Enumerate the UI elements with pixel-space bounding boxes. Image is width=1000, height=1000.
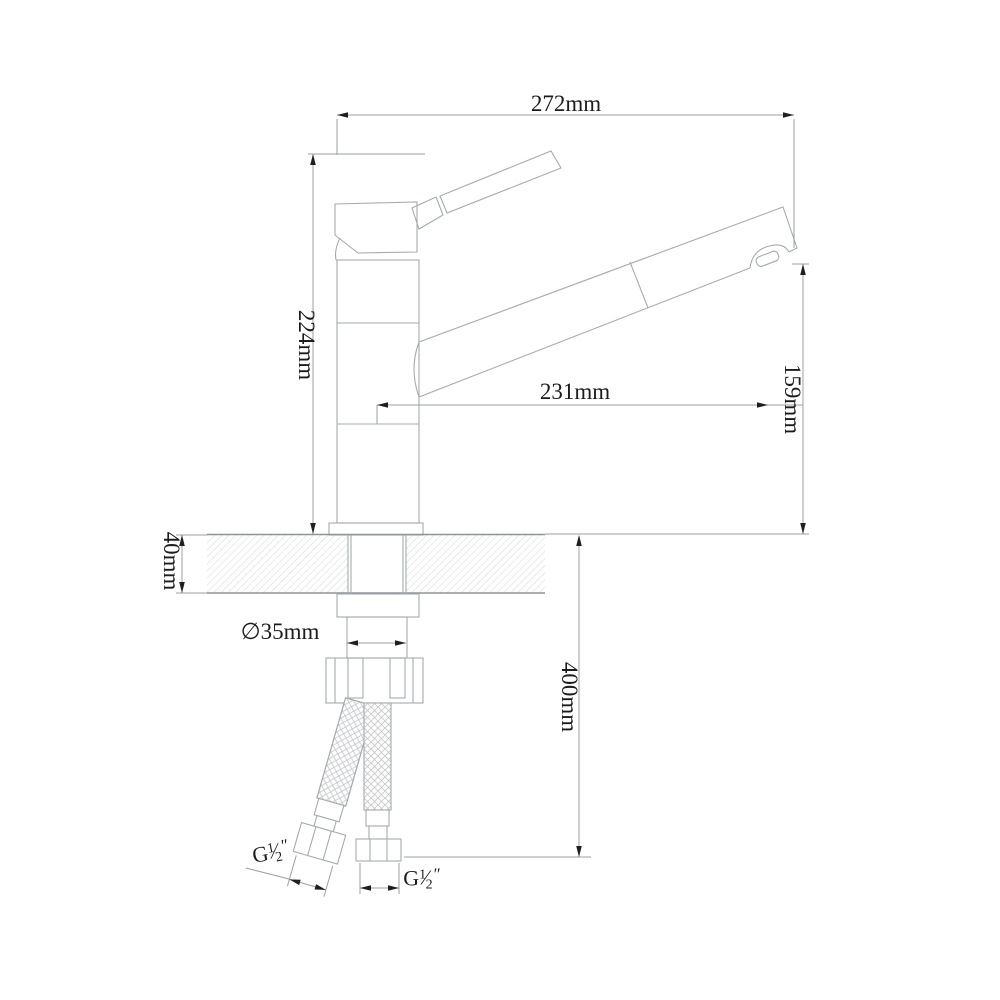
faucet-outline xyxy=(329,151,797,535)
dimension-overall-height: 224mm xyxy=(293,310,319,380)
ferrule-right xyxy=(366,810,389,826)
dimension-overall-width: 272mm xyxy=(531,91,601,117)
spout-joint-line xyxy=(630,262,648,308)
under-counter-mounting xyxy=(326,594,423,703)
dimension-outlet-height: 159mm xyxy=(779,364,805,434)
technical-drawing-page: 272mm 224mm 231mm 159mm 40mm ∅35mm 400mm… xyxy=(0,0,1000,1000)
dimension-lines xyxy=(176,115,809,894)
thread-size-label-right: G1⁄2″ xyxy=(403,865,441,894)
supply-hoses xyxy=(284,696,401,898)
thread-denominator: 2 xyxy=(426,878,433,893)
nut-slot xyxy=(390,658,405,698)
aerator-face xyxy=(755,250,780,268)
handle-lever xyxy=(440,151,561,213)
countertop-hatch-left xyxy=(207,535,348,593)
spout xyxy=(414,207,797,397)
countertop-hatch-right xyxy=(406,535,545,593)
handle-cap xyxy=(335,202,417,253)
base-flange xyxy=(329,523,423,535)
cap-collar-arc xyxy=(336,238,341,260)
aerator-dome xyxy=(750,245,789,268)
countertop xyxy=(207,535,545,595)
faucet-body xyxy=(337,260,419,523)
dimension-hole-diameter: ∅35mm xyxy=(241,619,320,645)
mounting-nut xyxy=(326,658,423,703)
nut-slot xyxy=(348,658,363,698)
dimension-arrows xyxy=(179,112,806,891)
dimension-spout-reach: 231mm xyxy=(540,379,610,405)
dimension-deck-thickness: 40mm xyxy=(158,532,184,591)
hex-nut-right xyxy=(356,839,401,861)
faucet-line-drawing xyxy=(0,0,1000,1000)
hex-nut-left xyxy=(293,823,345,865)
braided-hose-right xyxy=(364,703,391,810)
threaded-shank xyxy=(347,617,407,658)
dimension-hose-length: 400mm xyxy=(556,662,582,732)
shank-washer xyxy=(337,594,419,617)
thread-inch-mark: ″ xyxy=(434,865,441,884)
thread-prefix: G xyxy=(403,866,419,891)
